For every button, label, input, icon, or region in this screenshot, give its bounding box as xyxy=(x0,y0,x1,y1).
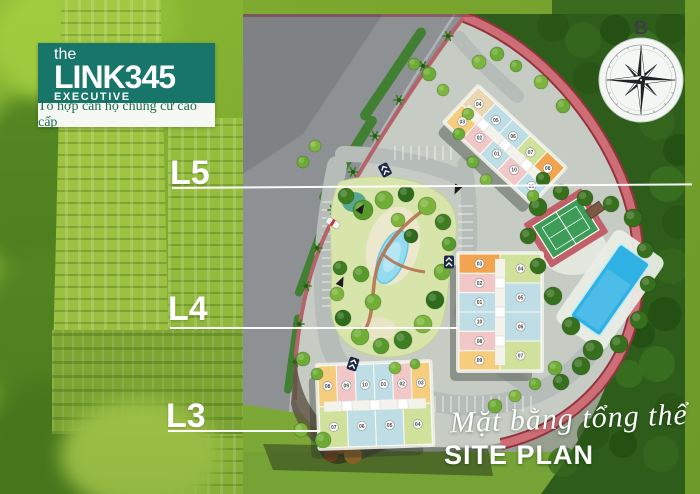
svg-text:05: 05 xyxy=(387,423,393,429)
unit-number-L3-09: 09 xyxy=(342,381,351,390)
brochure-page: 0405060708030201100903020110080904050607… xyxy=(0,0,700,494)
svg-text:07: 07 xyxy=(331,425,337,431)
unit-number-L3-03: 03 xyxy=(416,378,425,387)
building-L3 xyxy=(315,359,436,451)
unit-number-L4-01: 01 xyxy=(475,298,484,307)
svg-text:06: 06 xyxy=(359,424,365,430)
svg-text:08: 08 xyxy=(325,384,331,390)
unit-number-L5-05: 05 xyxy=(491,116,500,125)
unit-number-L4-08: 08 xyxy=(475,336,484,345)
svg-text:09: 09 xyxy=(477,358,483,364)
unit-number-L5-07: 07 xyxy=(526,148,535,157)
svg-text:03: 03 xyxy=(418,381,424,387)
svg-text:01: 01 xyxy=(477,300,483,306)
unit-number-L3-10: 10 xyxy=(360,380,369,389)
unit-number-L3-08: 08 xyxy=(323,382,332,391)
svg-text:04: 04 xyxy=(415,422,421,428)
unit-number-L4-03: 03 xyxy=(475,259,484,268)
label-building-l4: L4 xyxy=(168,290,208,329)
unit-number-L5-06: 06 xyxy=(509,132,518,141)
svg-text:08: 08 xyxy=(545,166,551,172)
svg-text:08: 08 xyxy=(477,339,483,345)
unit-number-L4-07: 07 xyxy=(516,351,525,360)
svg-text:02: 02 xyxy=(477,281,483,287)
unit-number-L3-06: 06 xyxy=(357,421,366,430)
unit-number-L4-10: 10 xyxy=(475,317,484,326)
compass-star xyxy=(597,36,685,124)
svg-text:10: 10 xyxy=(511,168,517,174)
unit-number-L4-05: 05 xyxy=(516,293,525,302)
logo-tagline: Tổ hợp căn hộ chung cư cao cấp xyxy=(38,99,215,131)
svg-text:07: 07 xyxy=(528,150,534,156)
compass-north-label: B xyxy=(595,20,687,38)
svg-text:03: 03 xyxy=(460,119,466,125)
unit-number-L5-03: 03 xyxy=(458,117,467,126)
unit-number-L3-05: 05 xyxy=(385,420,394,429)
svg-text:01: 01 xyxy=(381,382,387,388)
svg-text:02: 02 xyxy=(477,135,483,141)
svg-text:05: 05 xyxy=(493,118,499,124)
logo-brand: LINK345 xyxy=(54,63,215,91)
svg-text:09: 09 xyxy=(344,383,350,389)
unit-number-L3-02: 02 xyxy=(398,379,407,388)
caption-english: SITE PLAN xyxy=(444,440,594,471)
svg-text:06: 06 xyxy=(510,134,516,140)
svg-text:07: 07 xyxy=(518,353,524,359)
svg-text:02: 02 xyxy=(399,381,405,387)
svg-text:04: 04 xyxy=(476,102,482,108)
logo-tagline-band: Tổ hợp căn hộ chung cư cao cấp xyxy=(38,103,215,127)
unit-number-L4-06: 06 xyxy=(516,322,525,331)
unit-number-L4-04: 04 xyxy=(516,264,525,273)
svg-text:10: 10 xyxy=(477,319,483,325)
unit-number-L5-04: 04 xyxy=(474,99,483,108)
unit-number-L5-10: 10 xyxy=(509,165,518,174)
unit-number-L5-01: 01 xyxy=(492,149,501,158)
svg-text:03: 03 xyxy=(477,261,483,267)
unit-number-L4-02: 02 xyxy=(475,278,484,287)
unit-number-L3-01: 01 xyxy=(379,380,388,389)
svg-text:04: 04 xyxy=(518,266,524,272)
compass-rose: B xyxy=(595,20,687,126)
svg-text:05: 05 xyxy=(518,295,524,301)
leader-line-l4 xyxy=(170,327,458,329)
logo-panel: the LINK345 EXECUTIVE APARTMENTS xyxy=(38,43,215,103)
leader-line-l3 xyxy=(168,430,320,432)
svg-text:01: 01 xyxy=(494,152,500,158)
svg-text:10: 10 xyxy=(362,383,368,389)
unit-number-L3-04: 04 xyxy=(413,419,422,428)
project-logo: the LINK345 EXECUTIVE APARTMENTS Tổ hợp … xyxy=(38,43,215,127)
unit-number-L5-02: 02 xyxy=(475,133,484,142)
unit-number-L5-08: 08 xyxy=(543,164,552,173)
svg-text:06: 06 xyxy=(518,324,524,330)
unit-number-L4-09: 09 xyxy=(475,356,484,365)
unit-number-L3-07: 07 xyxy=(329,422,338,431)
